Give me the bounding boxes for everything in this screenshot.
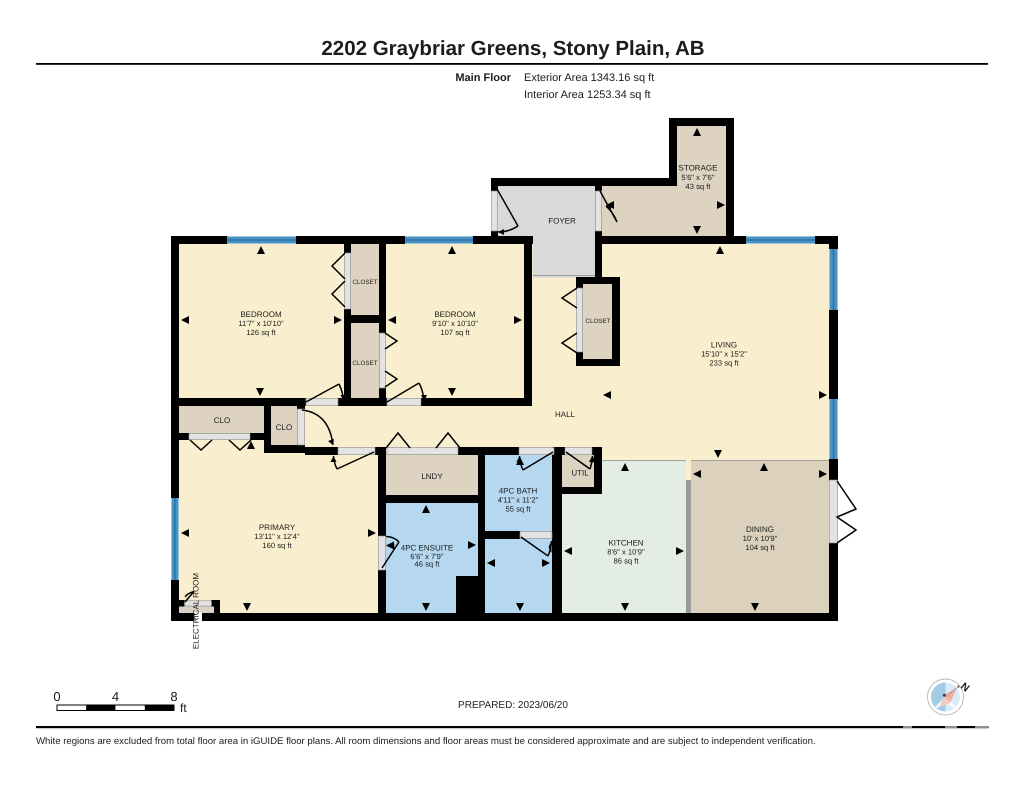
svg-text:13'11" x 12'4": 13'11" x 12'4" [254, 532, 300, 541]
svg-text:FOYER: FOYER [548, 217, 576, 226]
svg-text:233 sq ft: 233 sq ft [709, 359, 739, 368]
svg-text:0: 0 [53, 689, 60, 704]
svg-text:10' x 10'9": 10' x 10'9" [743, 534, 778, 543]
svg-text:KITCHEN: KITCHEN [608, 539, 643, 548]
svg-text:BEDROOM: BEDROOM [240, 310, 282, 319]
svg-text:LIVING: LIVING [711, 341, 737, 350]
svg-text:BEDROOM: BEDROOM [434, 310, 476, 319]
svg-text:CLOSET: CLOSET [352, 279, 377, 286]
svg-text:STORAGE: STORAGE [679, 164, 718, 173]
svg-text:46 sq ft: 46 sq ft [415, 560, 441, 569]
svg-text:CLO: CLO [276, 423, 292, 432]
svg-text:CLOSET: CLOSET [352, 360, 377, 367]
svg-text:UTIL: UTIL [571, 469, 589, 478]
svg-text:DINING: DINING [746, 525, 774, 534]
svg-text:43 sq ft: 43 sq ft [686, 182, 712, 191]
svg-text:160 sq ft: 160 sq ft [262, 541, 292, 550]
svg-text:107 sq ft: 107 sq ft [440, 328, 470, 337]
svg-text:104 sq ft: 104 sq ft [745, 543, 775, 552]
svg-text:8'6" x 10'9": 8'6" x 10'9" [607, 548, 645, 557]
svg-text:White regions are excluded fro: White regions are excluded from total fl… [36, 736, 816, 747]
svg-text:55 sq ft: 55 sq ft [506, 505, 532, 514]
svg-text:4'11" x 11'2": 4'11" x 11'2" [498, 496, 539, 505]
svg-text:CLOSET: CLOSET [585, 318, 610, 325]
svg-text:Interior Area 1253.34 sq ft: Interior Area 1253.34 sq ft [524, 89, 651, 101]
svg-text:8: 8 [170, 689, 177, 704]
svg-text:9'10" x 10'10": 9'10" x 10'10" [432, 319, 478, 328]
svg-text:15'10" x 15'2": 15'10" x 15'2" [701, 350, 747, 359]
svg-text:HALL: HALL [555, 410, 576, 419]
svg-text:5'6" x 7'6": 5'6" x 7'6" [681, 173, 715, 182]
svg-text:CLO: CLO [214, 416, 230, 425]
svg-text:PREPARED: 2023/06/20: PREPARED: 2023/06/20 [458, 700, 568, 711]
svg-text:2202 Graybriar Greens, Stony P: 2202 Graybriar Greens, Stony Plain, AB [321, 37, 704, 60]
svg-text:PRIMARY: PRIMARY [259, 523, 296, 532]
svg-text:Exterior Area 1343.16 sq ft: Exterior Area 1343.16 sq ft [524, 72, 654, 84]
svg-text:ELECTRICAL ROOM: ELECTRICAL ROOM [192, 573, 201, 649]
svg-text:Main Floor: Main Floor [455, 72, 511, 84]
svg-text:ft: ft [180, 701, 187, 715]
svg-text:86 sq ft: 86 sq ft [614, 557, 640, 566]
svg-text:4PC BATH: 4PC BATH [499, 487, 538, 496]
svg-text:126 sq ft: 126 sq ft [246, 328, 276, 337]
svg-text:11'7" x 10'10": 11'7" x 10'10" [238, 319, 284, 328]
svg-text:LNDY: LNDY [421, 472, 443, 481]
svg-text:4: 4 [112, 689, 119, 704]
